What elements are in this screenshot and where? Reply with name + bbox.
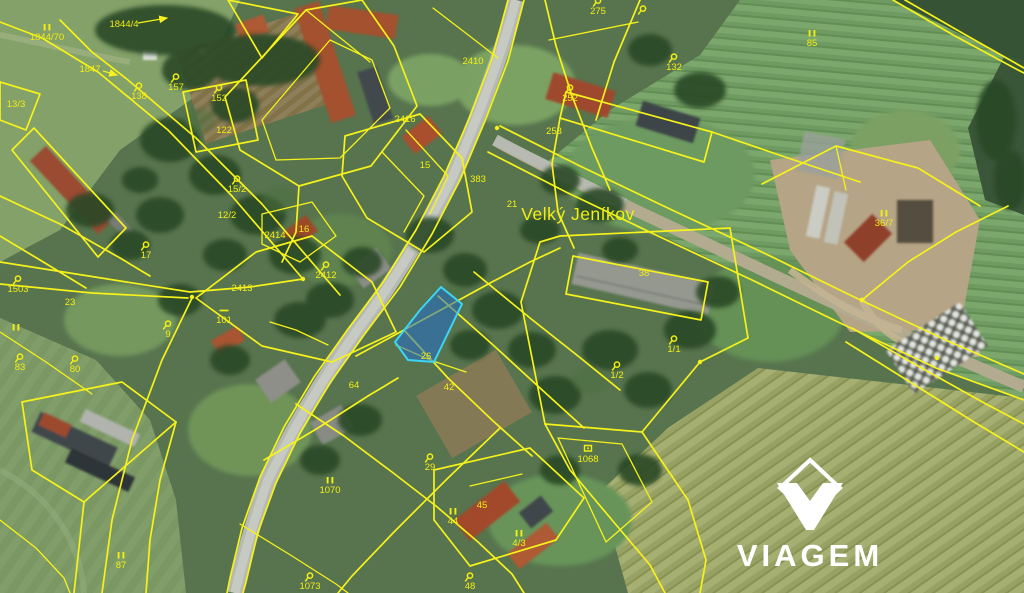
parcel-label-text: 21 [507,199,518,210]
parcel-label-text: 15/2 [228,184,247,195]
parcel-label-text: 44 [448,516,459,527]
parcel-label-text: 1503 [7,284,28,295]
parcel-label: 42 [444,382,455,393]
parcel-label-text: 85 [807,38,818,49]
parcel-label-text: 64 [349,380,360,391]
parcel-label-text: 26 [421,351,432,362]
parcel-label-text: 2410 [462,56,483,67]
parcel-label-text: 42 [444,382,455,393]
parcel-label-text: 122 [216,125,232,136]
parcel-label: 45 [477,500,488,511]
parcel-label: 253 [546,126,562,137]
parcel-label-text: 12/2 [218,210,237,221]
parcel-label: 15 [420,160,431,171]
parcel-label: 13/3 [7,99,26,110]
cadastral-map[interactable]: Velký Jeníkov 1844/701844/41847138157152… [0,0,1024,593]
parcel-label: 38 [639,268,650,279]
parcel-label-text: 383 [470,174,486,185]
parcel-label-text: 1073 [299,581,320,592]
parcel-label-text: 9 [165,329,170,340]
parcel-label-text: 1070 [319,485,340,496]
parcel-label: 12/2 [218,210,237,221]
parcel-label: 383 [470,174,486,185]
viagem-wordmark: VIAGEM [737,538,883,573]
parcel-label-text: 1/1 [667,344,680,355]
parcel-label-text: 4/3 [512,538,525,549]
parcel-label-text: 1/2 [610,370,623,381]
parcel-label-text: 48 [465,581,476,592]
parcel-label-text: 1844/4 [109,19,138,30]
parcel-label-text: 275 [590,6,606,17]
parcel-label-text: 36/7 [875,218,894,229]
parcel-label-text: 80 [70,364,81,375]
parcel-label-text: 29 [425,462,436,473]
parcel-label-text: 138 [131,91,147,102]
place-label: Velký Jeníkov [521,204,635,224]
parcel-label-text: 1844/70 [30,32,64,43]
parcel-label-text: 15 [420,160,431,171]
parcel-label-text: 38 [639,268,650,279]
parcel-label-text: 132 [666,62,682,73]
parcel-label: 2416 [394,114,415,125]
parcel-label: 64 [349,380,360,391]
parcel-label-text: 2412 [315,270,336,281]
parcel-label-text: 1068 [577,454,598,465]
parcel-label-text: 2416 [394,114,415,125]
parcel-label: 1847 [79,64,100,75]
parcel-label-text: 101 [216,315,232,326]
parcel-label-text: 13/3 [7,99,26,110]
parcel-label: 2413 [231,283,252,294]
parcel-label: 21 [507,199,518,210]
parcel-label-text: 87 [116,560,127,571]
parcel-label: 26 [421,351,432,362]
parcel-label-text: 45 [477,500,488,511]
parcel-label-text: 23 [65,297,76,308]
parcel-label-text: 2413 [231,283,252,294]
parcel-label-text: 17 [141,250,152,261]
parcel-label: 2414 [264,230,285,241]
map-viewport[interactable]: Velký Jeníkov 1844/701844/41847138157152… [0,0,1024,593]
parcel-label: 1844/4 [109,19,138,30]
parcel-label: 2410 [462,56,483,67]
parcel-label-text: 152 [211,93,227,104]
parcel-label-text: 2414 [264,230,285,241]
parcel-label: 16 [299,224,310,235]
parcel-label-text: 157 [168,82,184,93]
parcel-label-text: 1847 [79,64,100,75]
parcel-label-text: 252 [562,93,578,104]
parcel-label-text: 253 [546,126,562,137]
parcel-label: 122 [216,125,232,136]
parcel-label-text: 16 [299,224,310,235]
parcel-label-text: 83 [15,362,26,373]
parcel-label: 23 [65,297,76,308]
